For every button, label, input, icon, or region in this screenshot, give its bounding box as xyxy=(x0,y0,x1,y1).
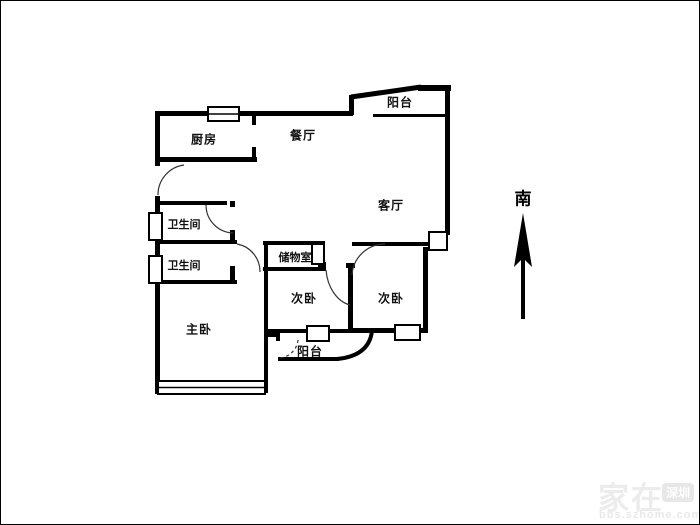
south-arrow-icon xyxy=(514,213,532,319)
room-label-master-bedroom: 主卧 xyxy=(186,321,212,338)
room-label-balcony-bottom: 阳台 xyxy=(297,343,323,360)
room-label-living: 客厅 xyxy=(378,197,404,214)
floorplan-image: 厨房餐厅阳台客厅卫生间卫生间储物室次卧次卧主卧阳台 南 家在 深圳 bbs.sz… xyxy=(0,0,700,525)
room-label-kitchen: 厨房 xyxy=(191,131,217,148)
room-label-bedroom-left: 次卧 xyxy=(291,290,317,307)
balcony-curved-wall xyxy=(337,331,372,359)
floorplan-drawing xyxy=(1,1,700,525)
room-label-bedroom-right: 次卧 xyxy=(378,290,404,307)
room-label-balcony-top: 阳台 xyxy=(387,94,413,111)
room-label-bathroom-2: 卫生间 xyxy=(168,257,201,273)
room-label-storage: 储物室 xyxy=(279,249,312,265)
compass-south-label: 南 xyxy=(515,185,532,210)
room-label-bathroom-1: 卫生间 xyxy=(168,216,201,232)
room-label-dining: 餐厅 xyxy=(290,127,316,144)
